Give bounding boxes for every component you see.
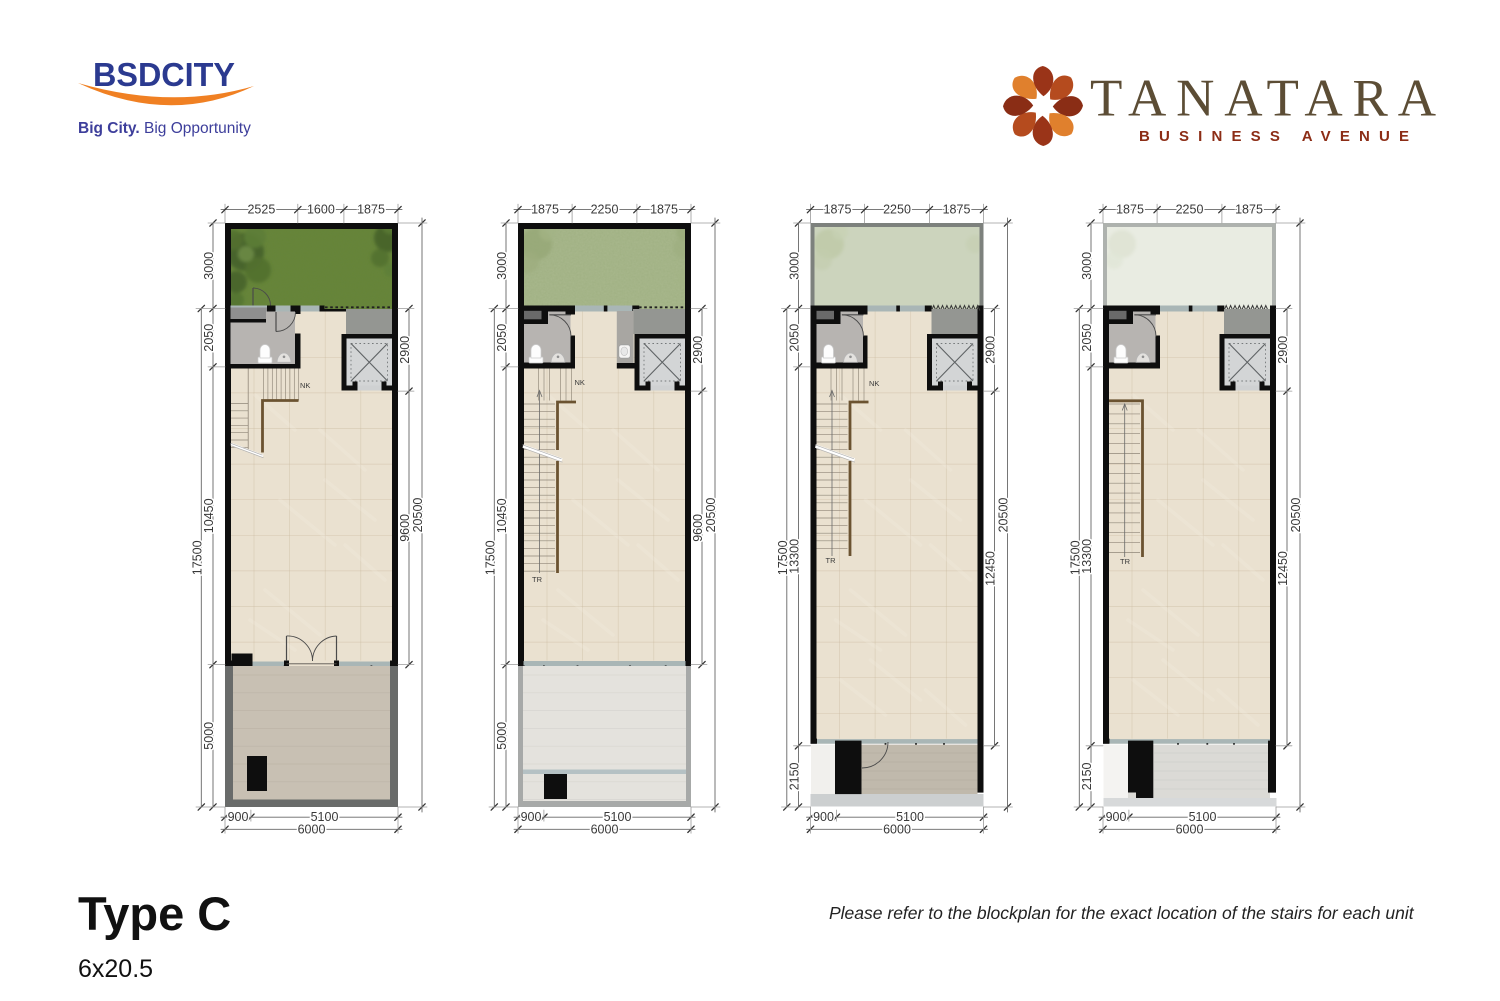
svg-text:6000: 6000 <box>298 822 326 836</box>
svg-text:3000: 3000 <box>202 252 216 280</box>
svg-text:900: 900 <box>1106 810 1127 824</box>
svg-text:NK: NK <box>869 379 879 388</box>
svg-text:BSDCITY: BSDCITY <box>93 56 235 93</box>
svg-text:2250: 2250 <box>883 203 911 217</box>
svg-text:1875: 1875 <box>531 203 559 217</box>
svg-text:2900: 2900 <box>398 336 412 364</box>
svg-text:2900: 2900 <box>1276 336 1290 364</box>
svg-text:20500: 20500 <box>411 498 425 533</box>
svg-text:900: 900 <box>521 810 542 824</box>
svg-text:Type C: Type C <box>78 887 231 940</box>
svg-text:Please refer to the blockplan: Please refer to the blockplan for the ex… <box>829 903 1415 923</box>
svg-text:20500: 20500 <box>997 498 1011 533</box>
svg-text:1875: 1875 <box>650 203 678 217</box>
svg-text:NK: NK <box>575 378 585 387</box>
svg-text:BUSINESS AVENUE: BUSINESS AVENUE <box>1139 128 1409 145</box>
svg-text:TR: TR <box>532 575 543 584</box>
svg-text:20500: 20500 <box>704 498 718 533</box>
svg-text:2150: 2150 <box>1080 762 1094 790</box>
svg-text:9600: 9600 <box>691 514 705 542</box>
svg-text:2250: 2250 <box>1176 203 1204 217</box>
svg-text:6x20.5: 6x20.5 <box>78 955 153 983</box>
svg-text:TR: TR <box>826 556 837 565</box>
svg-text:3000: 3000 <box>1080 252 1094 280</box>
svg-text:900: 900 <box>228 810 249 824</box>
svg-text:2050: 2050 <box>1080 324 1094 352</box>
svg-text:12450: 12450 <box>984 551 998 586</box>
svg-text:20500: 20500 <box>1289 498 1303 533</box>
svg-text:Big City. Big Opportunity: Big City. Big Opportunity <box>78 120 251 137</box>
svg-text:2525: 2525 <box>247 203 275 217</box>
svg-text:2150: 2150 <box>788 762 802 790</box>
svg-text:12450: 12450 <box>1276 551 1290 586</box>
svg-text:2050: 2050 <box>495 324 509 352</box>
svg-text:1875: 1875 <box>943 203 971 217</box>
svg-text:2900: 2900 <box>984 336 998 364</box>
svg-text:2900: 2900 <box>691 336 705 364</box>
svg-text:5000: 5000 <box>202 722 216 750</box>
svg-text:9600: 9600 <box>398 514 412 542</box>
svg-text:900: 900 <box>813 810 834 824</box>
svg-text:2050: 2050 <box>202 324 216 352</box>
svg-text:10450: 10450 <box>202 498 216 533</box>
svg-text:6000: 6000 <box>1176 822 1204 836</box>
svg-text:10450: 10450 <box>495 498 509 533</box>
svg-text:17500: 17500 <box>1068 540 1082 575</box>
svg-text:1875: 1875 <box>1116 203 1144 217</box>
svg-text:6000: 6000 <box>883 822 911 836</box>
svg-text:5000: 5000 <box>495 722 509 750</box>
svg-text:6000: 6000 <box>591 822 619 836</box>
svg-text:NK: NK <box>300 381 310 390</box>
svg-text:2250: 2250 <box>591 203 619 217</box>
svg-text:2050: 2050 <box>788 324 802 352</box>
svg-text:17500: 17500 <box>483 540 497 575</box>
svg-text:1600: 1600 <box>307 203 335 217</box>
svg-text:17500: 17500 <box>190 540 204 575</box>
svg-text:1875: 1875 <box>824 203 852 217</box>
svg-text:1875: 1875 <box>1235 203 1263 217</box>
svg-text:3000: 3000 <box>788 252 802 280</box>
svg-text:TR: TR <box>1120 557 1131 566</box>
svg-text:17500: 17500 <box>776 540 790 575</box>
svg-text:1875: 1875 <box>357 203 385 217</box>
svg-text:3000: 3000 <box>495 252 509 280</box>
